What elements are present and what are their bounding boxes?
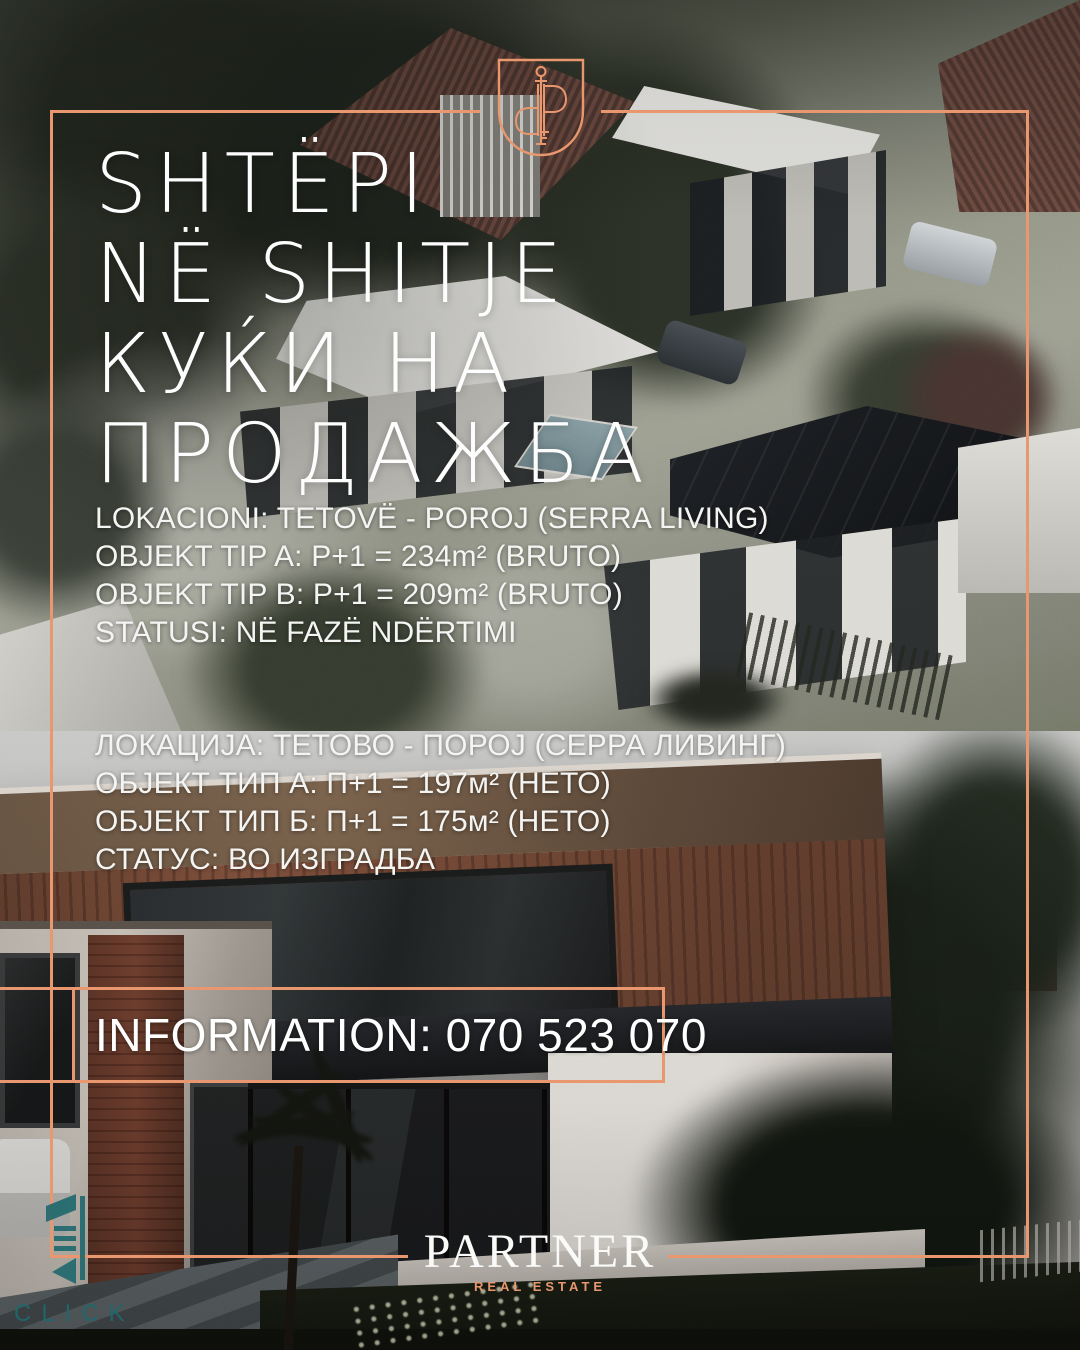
object-type-a-line-sq: OBJEKT TIP A: P+1 = 234m² (BRUTO) [95, 538, 769, 576]
info-box-bottom-border [0, 1080, 665, 1083]
modern-house-flat-roof [612, 86, 880, 194]
object-type-b-line-mk: ОБЈЕКТ ТИП Б: П+1 = 175м² (НЕТО) [95, 803, 786, 841]
frame-top-border-left-segment [50, 110, 480, 113]
parked-car [655, 318, 749, 387]
pitched-roof-house [938, 0, 1080, 212]
details-albanian: LOKACIONI: TETOVË - POROJ (SERRA LIVING)… [95, 500, 769, 652]
object-type-a-line-mk: ОБЈЕКТ ТИП А: П+1 = 197м² (НЕТО) [95, 765, 786, 803]
brand-name: PARTNER [0, 1226, 1080, 1278]
left-building-eave [0, 921, 272, 935]
info-box-top-border [0, 987, 665, 990]
yard-fence [735, 612, 959, 721]
brand-tagline: REAL ESTATE [0, 1279, 1080, 1294]
patio-furniture-silhouette [640, 665, 790, 731]
object-type-b-line-sq: OBJEKT TIP B: P+1 = 209m² (BRUTO) [95, 576, 769, 614]
distant-lawn [690, 931, 1040, 1081]
headline-line-sq-1: SHTËPI [95, 140, 652, 230]
frame-top-border-right-segment [601, 110, 1029, 113]
distant-red-house [905, 899, 1057, 991]
headline-line-mk-1: КУЌИ НА [95, 320, 652, 410]
tree-canopy [850, 731, 1080, 1051]
frame-left-border [50, 110, 53, 1258]
headline-line-mk-2: ПРОДАЖБА [95, 410, 652, 500]
palm-frond [308, 1046, 367, 1166]
details-macedonian: ЛОКАЦИЈА: ТЕТОВО - ПОРОЈ (СЕРРА ЛИВИНГ) … [95, 727, 786, 879]
tree-canopy [800, 300, 1050, 500]
location-line-sq: LOKACIONI: TETOVË - POROJ (SERRA LIVING) [95, 500, 769, 538]
front-lawn [0, 1329, 1080, 1350]
information-phone: INFORMATION: 070 523 070 [95, 1008, 707, 1062]
modern-house-wall [690, 150, 886, 316]
click-abstract-mark-icon [46, 1192, 102, 1286]
foreground-tree [630, 1051, 1080, 1350]
frame-right-border [1026, 110, 1029, 1258]
click-watermark: CLICK [14, 1300, 135, 1328]
left-building-window [0, 953, 80, 1128]
palm-frond [250, 1112, 375, 1147]
palm-frond [271, 1078, 377, 1165]
info-box-left-border [72, 987, 75, 1083]
real-estate-poster: SHTËPI NË SHITJE КУЌИ НА ПРОДАЖБА LOKACI… [0, 0, 1080, 1350]
palm-frond [232, 1106, 356, 1145]
status-line-mk: СТАТУС: ВО ИЗГРАДБА [95, 841, 786, 879]
status-line-sq: STATUSI: NË FAZË NDËRTIMI [95, 614, 769, 652]
red-tree-canopy [895, 320, 1065, 475]
foreground-house-wing [958, 428, 1080, 593]
parked-suv [902, 220, 999, 288]
location-line-mk: ЛОКАЦИЈА: ТЕТОВО - ПОРОЈ (СЕРРА ЛИВИНГ) [95, 727, 786, 765]
brand-block: PARTNER REAL ESTATE [0, 1226, 1080, 1294]
headline: SHTËPI NË SHITJE КУЌИ НА ПРОДАЖБА [95, 140, 652, 500]
headline-line-sq-2: NË SHITJE [95, 230, 652, 320]
